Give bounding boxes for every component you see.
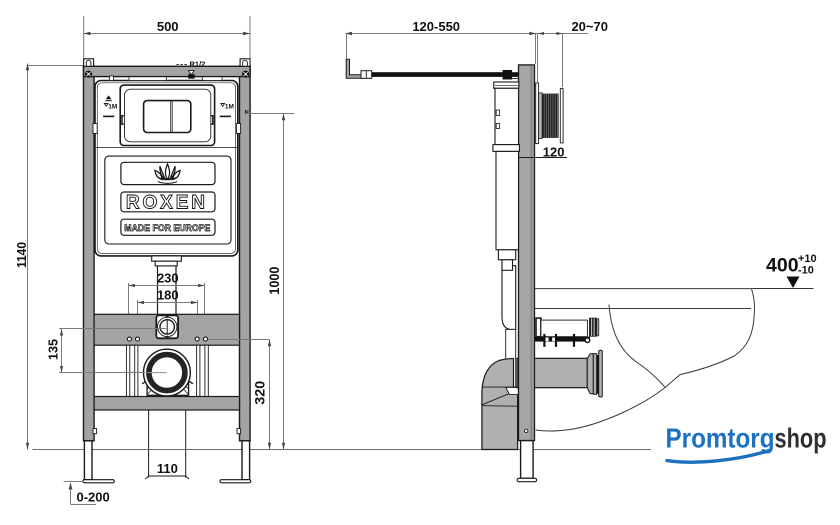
svg-text:180: 180 [157,287,179,302]
svg-text:320: 320 [253,381,268,405]
svg-text:120: 120 [543,144,565,159]
svg-text:MADE FOR EUROPE: MADE FOR EUROPE [124,223,210,233]
svg-text:Promtorg: Promtorg [666,423,775,454]
svg-text:-10: -10 [798,265,814,277]
svg-text:1000: 1000 [267,267,282,295]
svg-text:R1/2: R1/2 [190,59,206,68]
svg-text:120-550: 120-550 [412,19,460,34]
svg-text:0-200: 0-200 [77,489,110,504]
svg-text:135: 135 [47,339,61,360]
svg-text:+10: +10 [798,253,817,265]
svg-text:230: 230 [157,271,179,286]
svg-text:1140: 1140 [14,242,29,268]
svg-text:400: 400 [766,254,799,276]
svg-text:shop: shop [775,423,827,454]
svg-text:1M: 1M [225,103,234,110]
svg-text:110: 110 [157,461,178,476]
svg-text:20~70: 20~70 [571,19,608,34]
svg-text:ROXEN: ROXEN [126,193,208,214]
svg-text:1M: 1M [108,103,117,110]
svg-text:500: 500 [157,19,179,34]
